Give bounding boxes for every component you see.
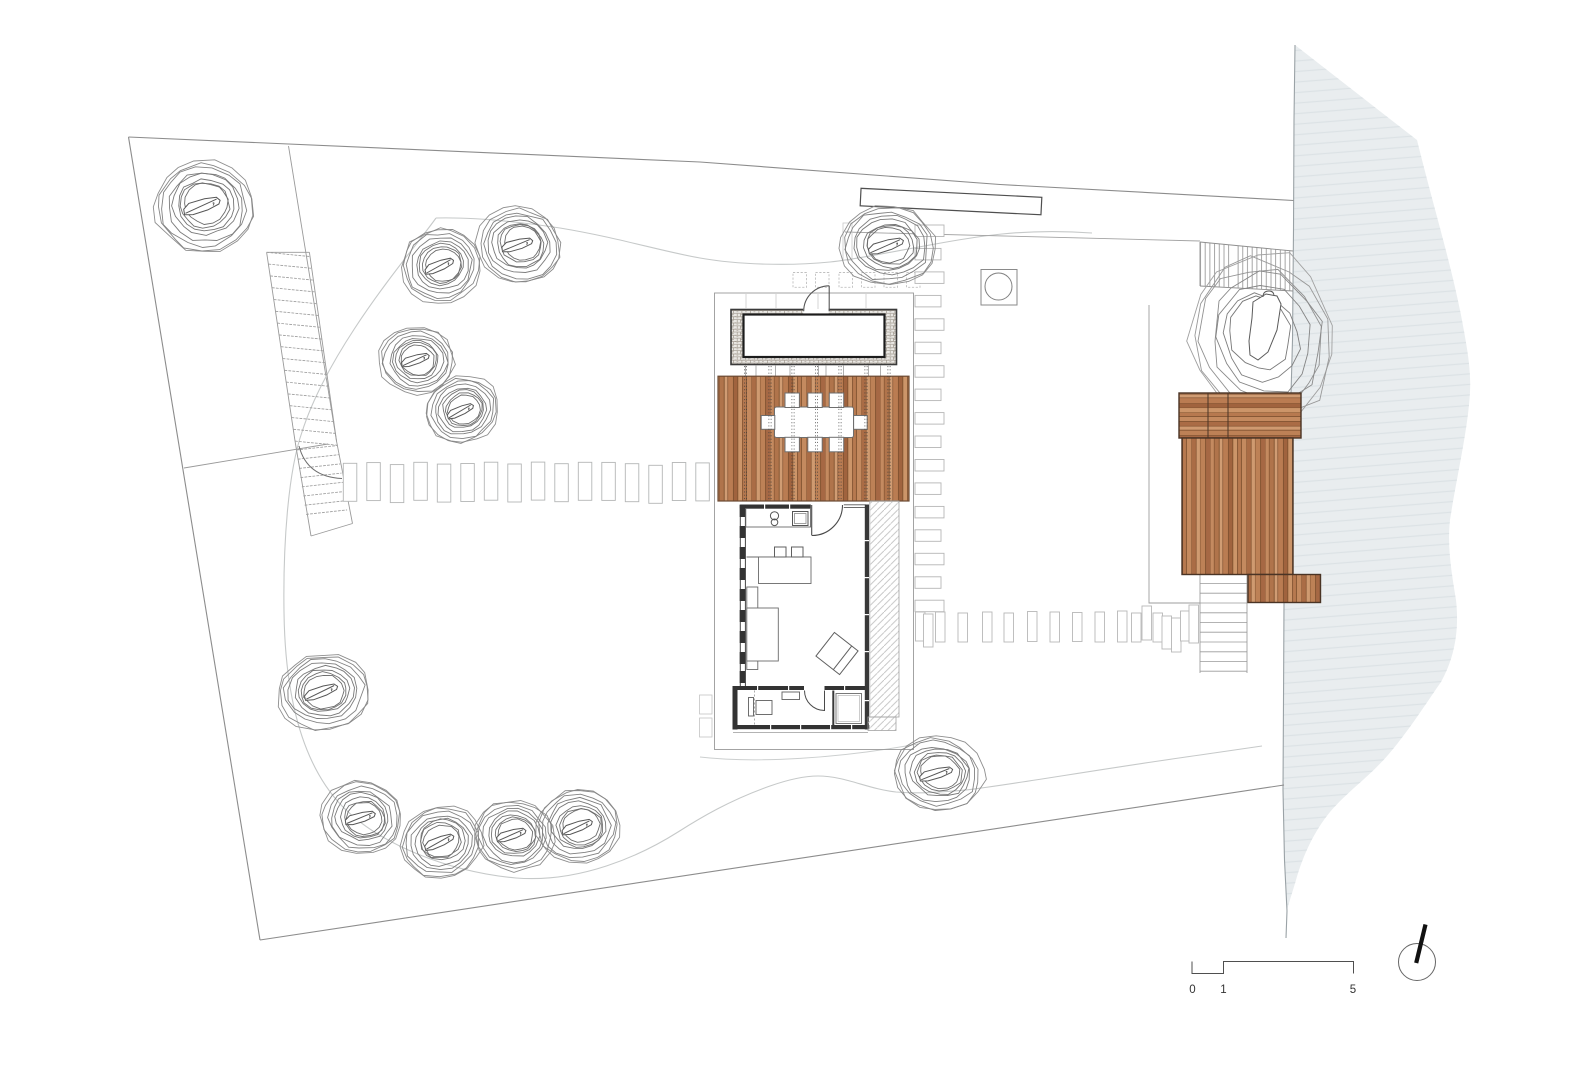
svg-text:1: 1 — [1220, 984, 1226, 996]
svg-text:5: 5 — [1350, 984, 1356, 996]
svg-text:0: 0 — [1189, 984, 1195, 996]
